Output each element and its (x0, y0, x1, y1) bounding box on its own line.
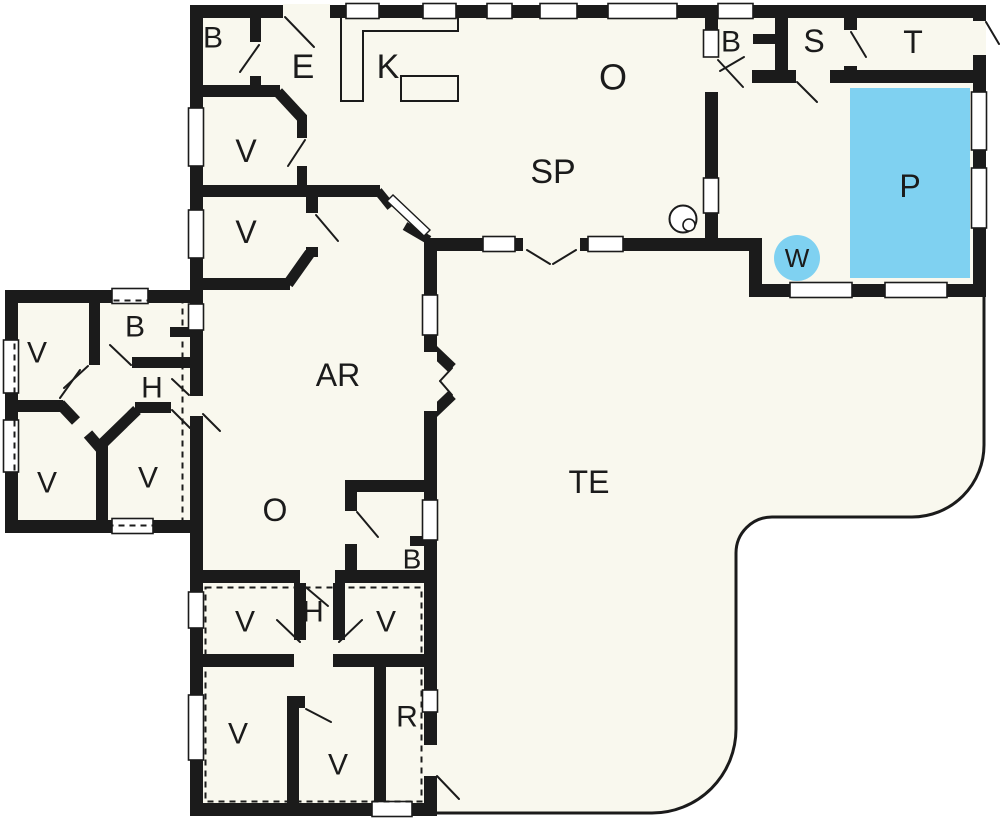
room-label-toilet-right: T (903, 24, 923, 60)
door-gap-wing-bc (305, 696, 333, 708)
room-label-bedroom-wing-bc: V (328, 749, 348, 782)
floor-plan-page: BEKOSPBSTPWVVARVBHVVOBTEVHVVVR (0, 0, 1000, 820)
room-label-hall-annex: H (141, 372, 163, 405)
window-top-2 (423, 4, 456, 19)
window-annex-left-1 (4, 340, 19, 393)
room-label-bedroom-main-2: V (235, 214, 257, 250)
room-label-lounge-lower: O (263, 492, 288, 528)
door-gap-annex-main (190, 396, 203, 416)
window-pool-south-1 (790, 283, 852, 298)
door-gap-bedroom2 (306, 213, 318, 247)
window-top-4 (540, 4, 577, 19)
window-annex-left-2 (4, 420, 19, 472)
door-gap-bath-tr (718, 70, 752, 83)
window-left-1 (189, 108, 204, 166)
window-wing-left-1 (189, 592, 204, 628)
door-gap-dining-terrace (523, 238, 580, 251)
window-dining-2 (588, 237, 623, 252)
window-pool-east-2 (972, 168, 987, 228)
wall-hall-wing-right (333, 583, 345, 640)
room-label-entry: E (292, 48, 315, 86)
wall-bedrooms-band (190, 185, 380, 197)
door-gap-wing-hall (300, 570, 335, 583)
wall-bedroom2-bottom (190, 278, 290, 290)
window-ar-east (423, 295, 438, 335)
window-top-5 (608, 4, 677, 19)
floor-terrace (431, 244, 984, 813)
wall-bath-tr-right (775, 12, 788, 83)
window-pool-east-1 (972, 92, 987, 150)
kitchen-island (401, 76, 458, 101)
door-gap-entry (283, 4, 330, 19)
room-label-whirlpool: W (785, 243, 810, 273)
wall-poolroom-south (749, 284, 986, 297)
wall-bath-mid-top (345, 480, 437, 492)
room-label-kitchen: K (377, 48, 400, 86)
room-label-sauna: S (803, 23, 824, 59)
room-label-bedroom-wing-tl: V (235, 606, 255, 639)
door-gap-bath-tl (250, 42, 261, 76)
window-dining-1 (483, 237, 515, 252)
window-top-6 (718, 4, 753, 19)
door-leaf-toilet-ext (986, 22, 999, 44)
window-divider-1 (704, 30, 719, 57)
door-gap-poolroom (705, 57, 718, 92)
window-left-3 (189, 304, 204, 330)
wall-bath-tr-stub (753, 34, 777, 44)
window-bath-mid-east (423, 500, 438, 540)
window-storage-east (423, 690, 438, 712)
room-label-storage: R (396, 701, 418, 734)
wall-wing-bl-right (287, 696, 299, 816)
room-label-pool: P (899, 168, 920, 204)
door-gap-storage (424, 745, 437, 776)
room-label-hall-wing: H (302, 596, 324, 629)
door-gap-bedroom1 (297, 138, 307, 166)
wood-stove-flue (683, 219, 695, 231)
door-gap-toilet-ext (973, 21, 986, 55)
window-pool-south-2 (885, 283, 947, 298)
window-top-3 (487, 4, 512, 19)
room-label-living: O (599, 57, 627, 98)
window-wing-left-2 (189, 695, 204, 760)
wall-annex-bath-bottom (132, 357, 203, 368)
wall-storage-left (374, 667, 386, 816)
wall-bath-tl-bottom (190, 85, 280, 97)
door-gap-bath-mid (345, 511, 357, 544)
window-divider-2 (704, 178, 719, 213)
door-gap-sauna (796, 70, 830, 83)
room-label-bath-top-left: B (203, 22, 223, 55)
window-top-1 (346, 4, 379, 19)
room-label-bath-annex: B (125, 311, 145, 344)
room-label-activity-room: AR (316, 357, 360, 393)
room-label-terrace: TE (569, 464, 610, 500)
room-label-dining: SP (530, 153, 575, 191)
room-label-bedroom-annex-bl: V (37, 467, 57, 500)
room-label-bedroom-wing-bl: V (228, 718, 248, 751)
window-wing-bottom (372, 802, 412, 817)
room-label-bath-top-right: B (721, 26, 741, 59)
wall-annex-v-divider (96, 444, 108, 533)
window-left-2 (189, 210, 204, 258)
room-label-bedroom-wing-tr: V (376, 606, 396, 639)
door-gap-sauna-toilet (844, 30, 857, 66)
floor-plan-canvas: BEKOSPBSTPWVVARVBHVVOBTEVHVVVR (0, 0, 1000, 820)
room-label-bath-mid: B (403, 544, 422, 575)
room-label-bedroom-main-1: V (235, 133, 257, 169)
room-label-bedroom-annex-tl: V (27, 337, 47, 370)
door-gap-bay (424, 352, 437, 411)
wall-annex-v1-right (89, 297, 100, 365)
room-label-bedroom-annex-br: V (138, 462, 158, 495)
